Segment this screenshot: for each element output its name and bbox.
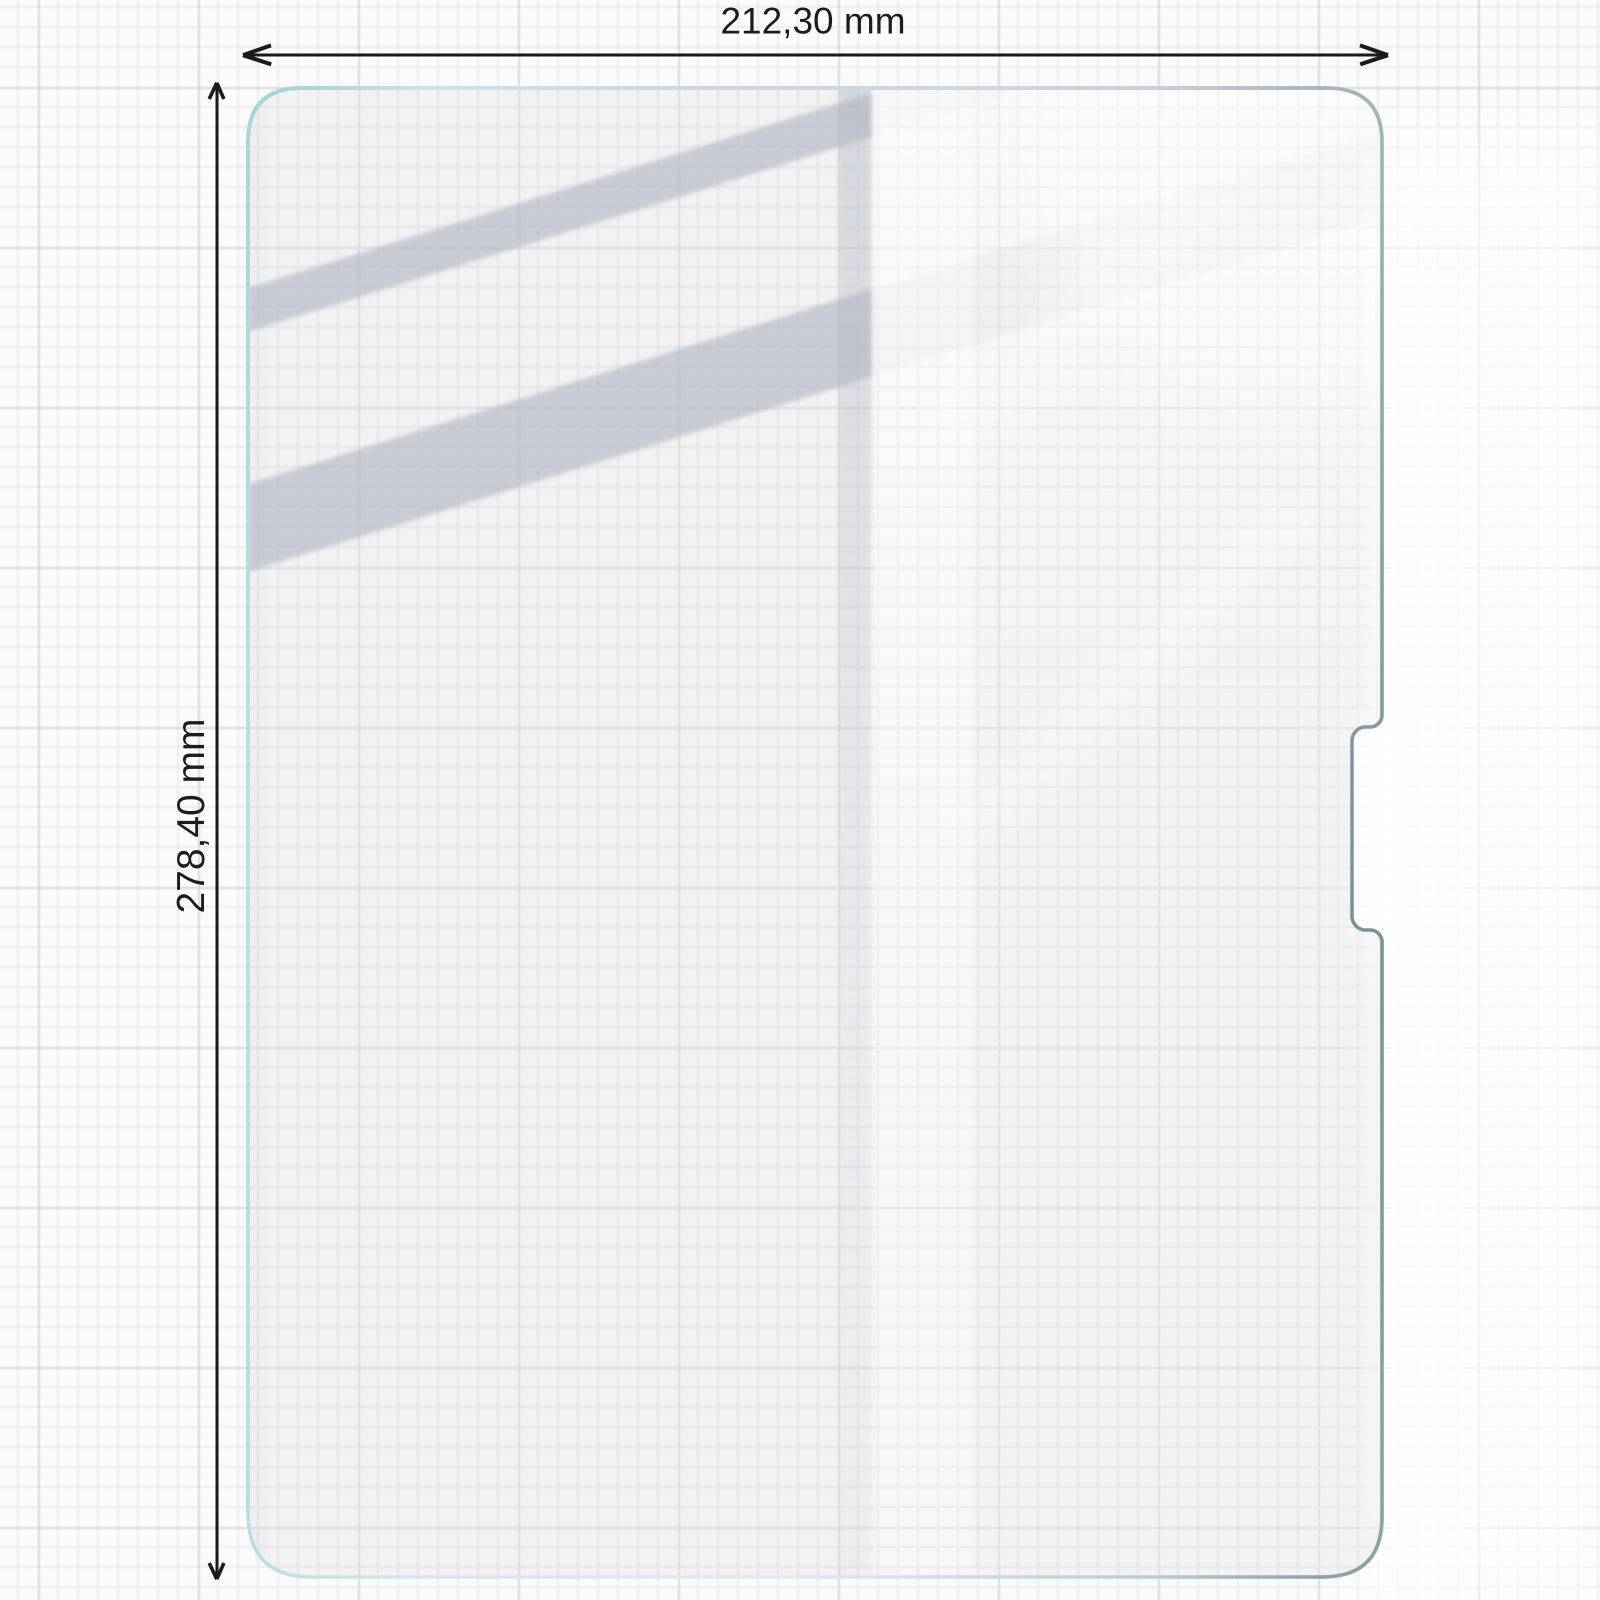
svg-text:212,30 mm: 212,30 mm (720, 1, 905, 42)
svg-text:278,40 mm: 278,40 mm (170, 718, 213, 913)
